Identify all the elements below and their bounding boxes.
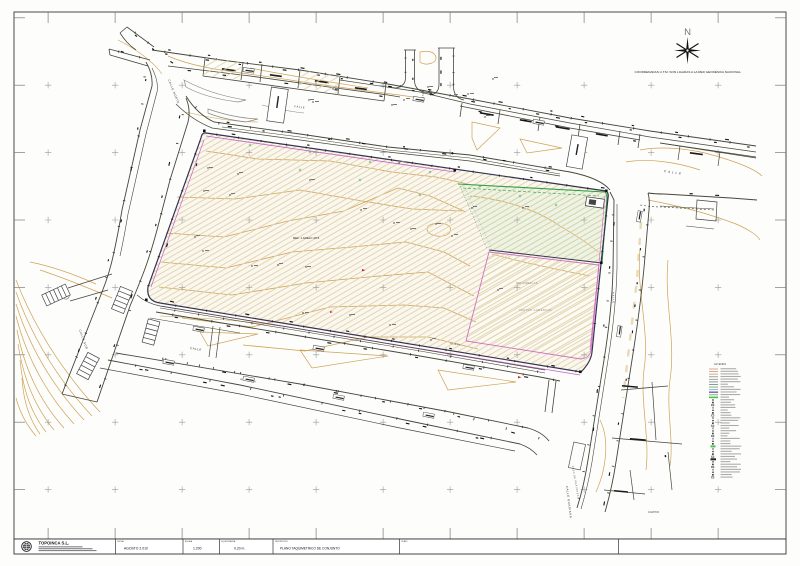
svg-text:LEYENDA: LEYENDA bbox=[714, 362, 726, 366]
svg-text:REF. 2 AREA= 4.5: REF. 2 AREA= 4.5 bbox=[516, 281, 538, 285]
svg-text:ESCALA: ESCALA bbox=[185, 540, 193, 543]
svg-text:CULTIVO: CULTIVO bbox=[648, 510, 659, 514]
svg-text:REF. 1 AREA= 28.5: REF. 1 AREA= 28.5 bbox=[293, 236, 320, 240]
svg-text:PLANO: PLANO bbox=[401, 540, 408, 543]
svg-text:FECHA: FECHA bbox=[118, 540, 125, 543]
svg-text:DESCRIPCION: DESCRIPCION bbox=[275, 541, 288, 543]
svg-text:TOPOINCA S.L.: TOPOINCA S.L. bbox=[39, 541, 70, 546]
svg-text:1:200: 1:200 bbox=[193, 546, 202, 550]
svg-text:0,20 m.: 0,20 m. bbox=[234, 546, 245, 550]
svg-text:AGOSTO 2.010: AGOSTO 2.010 bbox=[124, 546, 148, 550]
svg-text:N: N bbox=[684, 27, 691, 38]
svg-text:CALLE: CALLE bbox=[611, 292, 616, 304]
svg-text:EQUIDISTANCIA: EQUIDISTANCIA bbox=[221, 540, 236, 543]
svg-text:PLANO TAQUIMETRICO DE CONJUNTO: PLANO TAQUIMETRICO DE CONJUNTO bbox=[280, 546, 340, 550]
svg-text:CENTRO COMERCIAL: CENTRO COMERCIAL bbox=[519, 308, 553, 312]
svg-text:COORDENADAS U.T.M. SON LIGADAS: COORDENADAS U.T.M. SON LIGADAS A LA RED … bbox=[635, 69, 742, 74]
